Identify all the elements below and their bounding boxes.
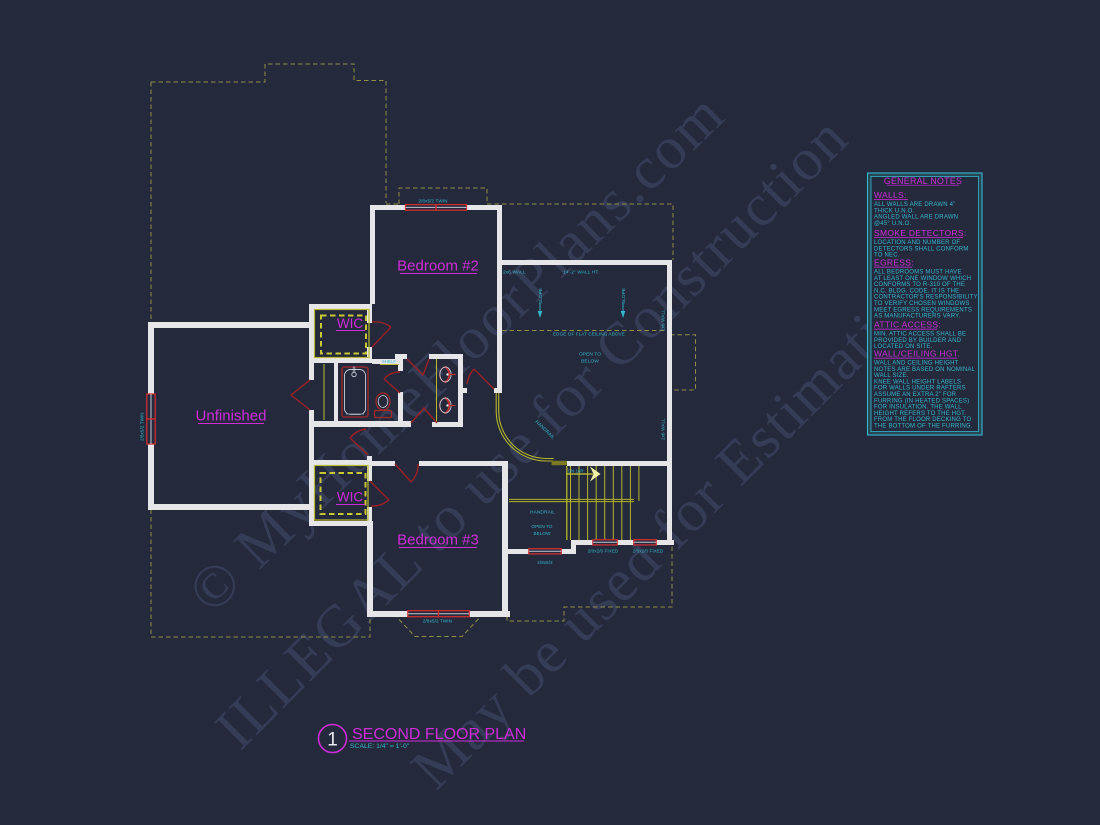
svg-text:FOR INSULATION. THE WALL: FOR INSULATION. THE WALL: [874, 405, 962, 411]
svg-text:Bedroom #2: Bedroom #2: [397, 258, 479, 275]
svg-text:N.C. BLDG. CODE. IT IS THE: N.C. BLDG. CODE. IT IS THE: [874, 288, 959, 294]
svg-text:WALL AND CEILING HEIGHT: WALL AND CEILING HEIGHT: [874, 361, 959, 367]
svg-text:2/8x5/2 TWIN: 2/8x5/2 TWIN: [423, 619, 452, 624]
svg-text:AT LEAST ONE WINDOW WHICH: AT LEAST ONE WINDOW WHICH: [874, 276, 971, 282]
svg-text:SHELF: SHELF: [382, 359, 396, 364]
svg-text:WIC: WIC: [337, 316, 363, 331]
svg-text:FROM THE FLOOR DECKING TO: FROM THE FLOOR DECKING TO: [874, 417, 971, 423]
svg-text:HEIGHT REFERS TO THE HGT.: HEIGHT REFERS TO THE HGT.: [874, 411, 966, 417]
svg-text:BELOW: BELOW: [581, 359, 599, 365]
svg-text:2/0x2/0 FIXED: 2/0x2/0 FIXED: [633, 549, 664, 554]
svg-text:KNEE WALL HEIGHT LABELS: KNEE WALL HEIGHT LABELS: [874, 379, 961, 385]
svg-text:ATTIC ACCESS:: ATTIC ACCESS:: [874, 320, 941, 330]
svg-text:SCALE: 1/4" = 1'-0": SCALE: 1/4" = 1'-0": [350, 743, 410, 750]
svg-text:ANGLED WALL ARE DRAWN: ANGLED WALL ARE DRAWN: [874, 215, 958, 221]
svg-text:OPEN TO: OPEN TO: [531, 524, 553, 529]
svg-text:WALLS:: WALLS:: [874, 190, 907, 200]
svg-text:DETECTORS SHALL CONFORM: DETECTORS SHALL CONFORM: [874, 246, 969, 252]
svg-text:FOR WALLS UNDER RAFTERS: FOR WALLS UNDER RAFTERS: [874, 386, 966, 392]
svg-text:FURRING (IN HEATED SPACES): FURRING (IN HEATED SPACES): [874, 398, 969, 404]
svg-text:SLOPE: SLOPE: [621, 288, 627, 304]
svg-text:2/8x5/2 TWIN: 2/8x5/2 TWIN: [140, 412, 145, 441]
svg-text:HANDRAIL: HANDRAIL: [530, 510, 555, 516]
svg-text:SMOKE DETECTORS:: SMOKE DETECTORS:: [874, 228, 967, 238]
svg-text:@45° U.N.O.: @45° U.N.O.: [874, 221, 911, 227]
svg-text:MIN. ATTIC ACCESS SHALL BE: MIN. ATTIC ACCESS SHALL BE: [874, 332, 966, 338]
svg-text:Bedroom #3: Bedroom #3: [397, 532, 479, 549]
svg-text:14'-2" WALL HT.: 14'-2" WALL HT.: [563, 270, 599, 276]
svg-text:THE BOTTOM OF THE FURRING.: THE BOTTOM OF THE FURRING.: [874, 424, 973, 430]
svg-text:1: 1: [327, 730, 338, 751]
svg-text:TO VERIFY CHOSEN WINDOWS: TO VERIFY CHOSEN WINDOWS: [874, 301, 970, 307]
svg-text:ASSUME AN EXTRA 2" FOR: ASSUME AN EXTRA 2" FOR: [874, 392, 957, 398]
svg-text:DN 16R: DN 16R: [568, 469, 584, 474]
svg-text:SLOPE: SLOPE: [538, 288, 544, 304]
svg-text:ALL BEDROOMS MUST HAVE: ALL BEDROOMS MUST HAVE: [874, 270, 962, 276]
svg-text:MEET EGRESS REQUIREMENTS: MEET EGRESS REQUIREMENTS: [874, 307, 972, 313]
svg-text:LOCATION AND NUMBER OF: LOCATION AND NUMBER OF: [874, 240, 960, 246]
svg-text:WIC: WIC: [337, 490, 363, 505]
svg-text:2/8x5/2: 2/8x5/2: [537, 560, 553, 565]
svg-text:NOTES ARE BASED ON NOMINAL: NOTES ARE BASED ON NOMINAL: [874, 367, 976, 373]
svg-text:WALL/CEILING HGT.: WALL/CEILING HGT.: [874, 349, 960, 359]
svg-text:2/0x2/0 FIXED: 2/0x2/0 FIXED: [588, 549, 619, 554]
svg-text:BELOW: BELOW: [533, 531, 551, 536]
svg-text:2x6 WALL: 2x6 WALL: [503, 270, 526, 276]
svg-text:ALL WALLS ARE DRAWN 4": ALL WALLS ARE DRAWN 4": [874, 202, 956, 208]
svg-text:GENERAL NOTES: GENERAL NOTES: [884, 176, 962, 186]
svg-text:2x6 WALL: 2x6 WALL: [661, 418, 666, 440]
svg-text:CONFORMS TO R-310 OF THE: CONFORMS TO R-310 OF THE: [874, 282, 965, 288]
svg-text:THICK U.N.O.: THICK U.N.O.: [874, 208, 915, 214]
svg-text:2x6 WALL: 2x6 WALL: [661, 309, 666, 331]
svg-text:EDGE OF FLAT CEILING ABOVE: EDGE OF FLAT CEILING ABOVE: [553, 332, 625, 337]
svg-text:2/8x5/2 TWIN: 2/8x5/2 TWIN: [418, 199, 447, 204]
svg-text:EGRESS:: EGRESS:: [874, 258, 914, 268]
svg-text:PROVIDED BY BUILDER AND: PROVIDED BY BUILDER AND: [874, 338, 962, 344]
svg-text:CONTRACTOR'S RESPONSIBILITY: CONTRACTOR'S RESPONSIBILITY: [874, 295, 978, 301]
svg-text:SECOND FLOOR PLAN: SECOND FLOOR PLAN: [352, 726, 526, 743]
svg-text:Unfinished: Unfinished: [196, 408, 267, 425]
svg-text:WALL SIZE.: WALL SIZE.: [874, 373, 909, 379]
svg-text:OPEN TO: OPEN TO: [579, 352, 601, 358]
